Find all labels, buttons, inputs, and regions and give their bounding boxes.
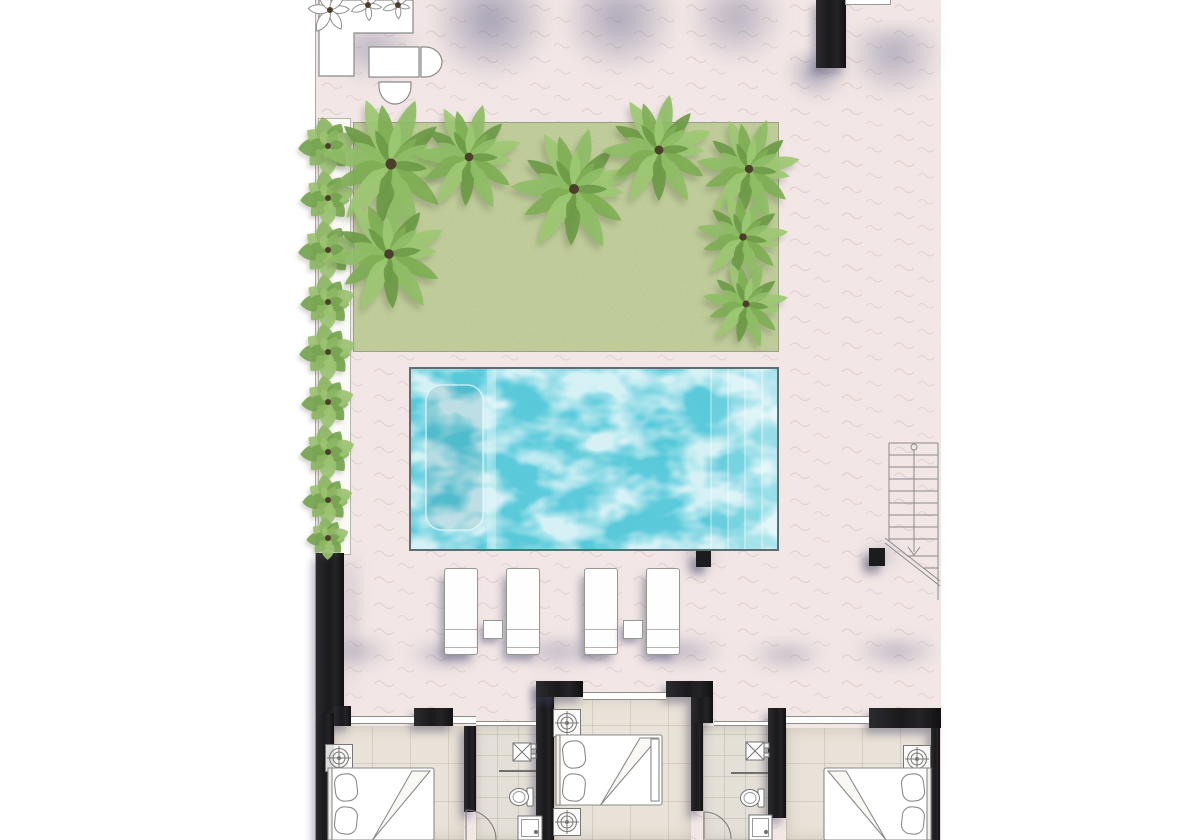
lounger-seam (647, 647, 679, 648)
structural-column (869, 548, 885, 566)
double-bed (556, 735, 662, 805)
dining-table (369, 47, 419, 77)
stair-break-line (885, 538, 940, 581)
sink-icon (513, 743, 536, 761)
hedge-shrub (299, 322, 358, 381)
shower-icon (749, 815, 772, 840)
sun-lounger (646, 568, 680, 655)
side-table (623, 620, 643, 639)
staircase (885, 443, 940, 600)
toilet-icon (510, 788, 534, 806)
chair (421, 47, 442, 77)
outdoor-kitchen (308, 0, 442, 104)
lounger-seam (585, 629, 617, 630)
shower-icon (518, 816, 542, 840)
palm-tree (702, 261, 789, 348)
chair (379, 82, 411, 104)
lounger-seam (507, 647, 539, 648)
lounger-seam (647, 629, 679, 630)
stair-start-marker (911, 444, 917, 450)
sun-lounger (506, 568, 540, 655)
sun-lounger (444, 568, 478, 655)
lounger-seam (507, 629, 539, 630)
toilet-icon (741, 789, 765, 807)
side-table (483, 620, 503, 639)
hedge-shrub (301, 374, 356, 429)
floor-plan-canvas (0, 0, 1200, 840)
foot-bench (651, 739, 659, 801)
headboard (556, 735, 560, 805)
plan-vector-layer (316, 0, 941, 840)
ceiling-light-icon (554, 710, 581, 737)
pillow (901, 806, 926, 835)
hedge-shrub (306, 516, 350, 560)
sink-icon (746, 742, 769, 760)
hedge-shrub (302, 473, 355, 526)
pillow (334, 806, 359, 835)
hedge-shrub (297, 115, 358, 176)
sun-lounger (584, 568, 618, 655)
hedge-shrub (300, 423, 357, 480)
lounger-seam (445, 629, 477, 630)
palm-tree (695, 118, 800, 222)
headboard (328, 768, 332, 840)
structural-column (696, 551, 711, 567)
lounger-seam (585, 647, 617, 648)
plan-area (315, 0, 940, 840)
ceiling-light-icon (554, 809, 581, 836)
door-swing (704, 812, 731, 839)
headboard (927, 768, 931, 840)
pillow (333, 773, 358, 802)
counter-sliver (845, 0, 891, 5)
stair-break-line (885, 543, 940, 586)
door-swing (466, 810, 496, 840)
pillow (561, 740, 586, 769)
double-bed (824, 768, 931, 840)
palm-tree (602, 94, 714, 205)
double-bed (328, 768, 434, 840)
pillow (900, 773, 925, 802)
pillow (562, 773, 587, 802)
lounger-seam (445, 647, 477, 648)
